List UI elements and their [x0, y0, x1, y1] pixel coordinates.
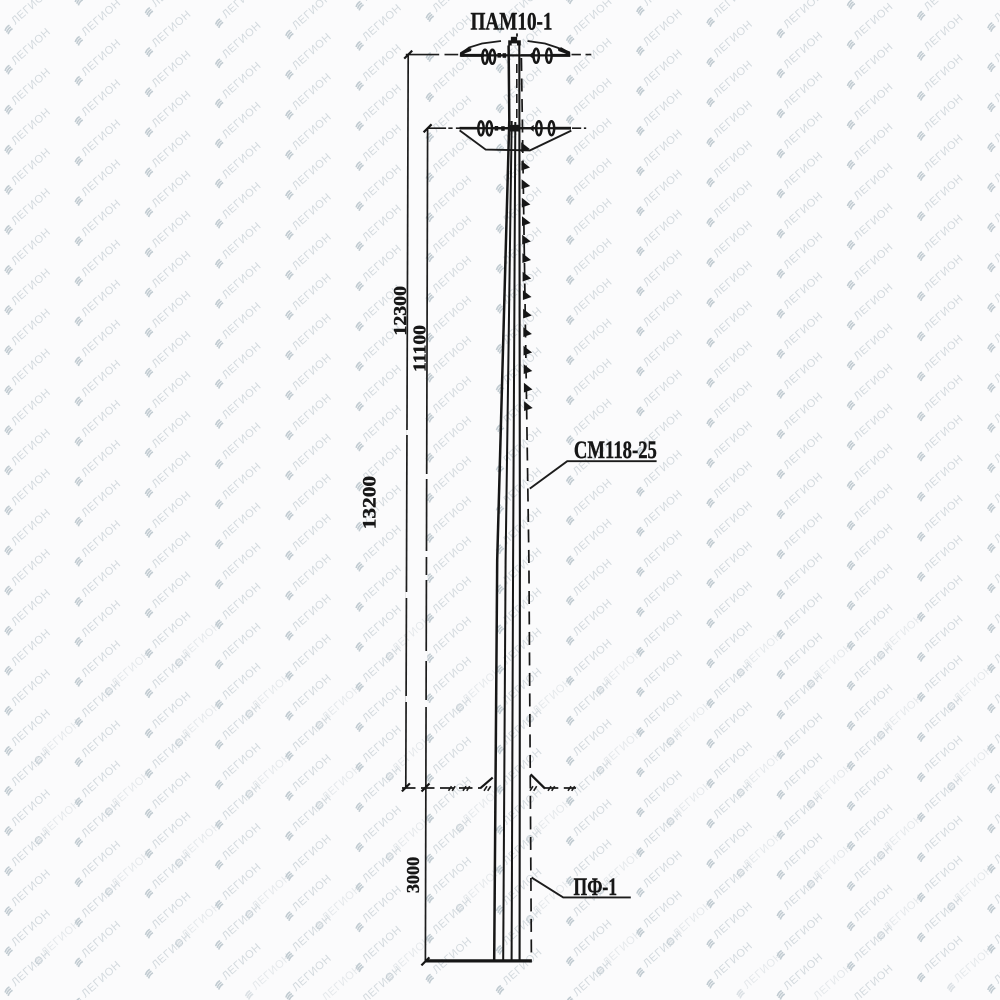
svg-text:ПФ-1: ПФ-1: [574, 874, 618, 901]
svg-text:11100: 11100: [410, 325, 430, 372]
svg-text:3000: 3000: [403, 857, 423, 893]
svg-text:13200: 13200: [360, 476, 381, 529]
svg-text:СМ118-25: СМ118-25: [574, 437, 657, 464]
svg-text:ПАМ10-1: ПАМ10-1: [471, 9, 553, 36]
svg-text:12300: 12300: [390, 286, 410, 336]
